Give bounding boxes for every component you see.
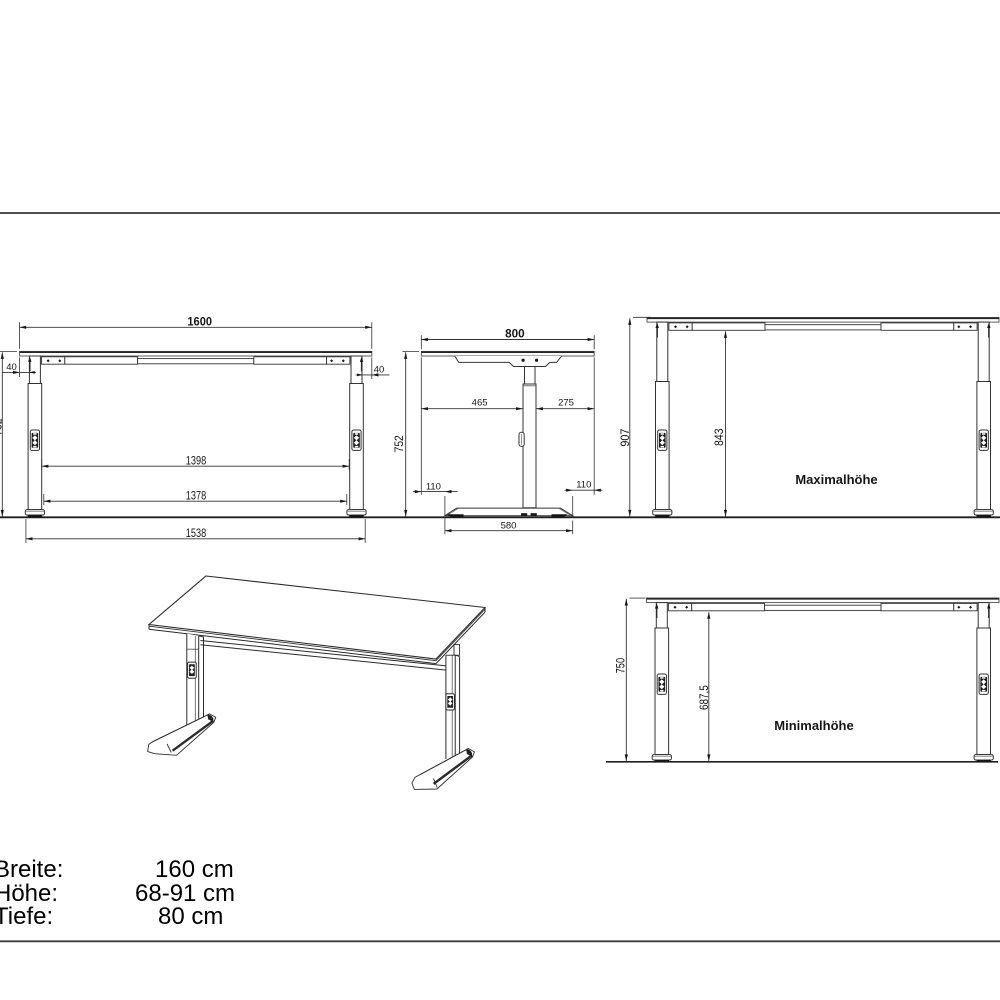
svg-text:1538: 1538 bbox=[186, 528, 206, 540]
svg-text:750: 750 bbox=[616, 658, 628, 674]
svg-text:110: 110 bbox=[576, 479, 591, 490]
svg-text:Minimalhöhe: Minimalhöhe bbox=[774, 718, 853, 733]
svg-text:275: 275 bbox=[558, 398, 574, 409]
svg-text:907: 907 bbox=[618, 428, 632, 446]
svg-text:1398: 1398 bbox=[186, 455, 206, 467]
svg-text:687,5: 687,5 bbox=[699, 685, 711, 710]
svg-text:Maximalhöhe: Maximalhöhe bbox=[795, 472, 877, 487]
svg-text:465: 465 bbox=[472, 398, 488, 409]
svg-text:110: 110 bbox=[426, 481, 441, 492]
svg-text:752: 752 bbox=[392, 435, 406, 452]
svg-text:580: 580 bbox=[501, 521, 517, 532]
svg-text:40: 40 bbox=[374, 364, 385, 375]
svg-text:843: 843 bbox=[712, 428, 726, 446]
svg-text:1378: 1378 bbox=[186, 491, 206, 503]
svg-text:1600: 1600 bbox=[187, 314, 212, 328]
svg-text:40: 40 bbox=[6, 362, 17, 373]
svg-text:800: 800 bbox=[505, 327, 525, 341]
